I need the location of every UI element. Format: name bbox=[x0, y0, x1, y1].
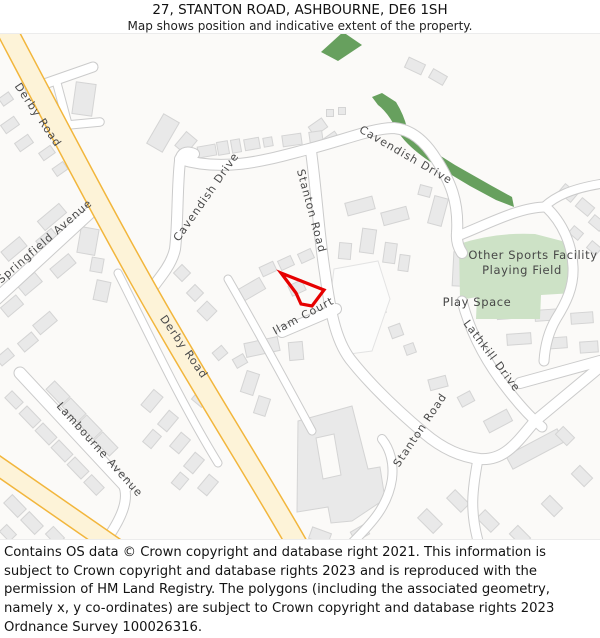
label-sports-facility-line1: Other Sports Facility bbox=[468, 248, 597, 262]
building bbox=[288, 341, 304, 360]
building bbox=[244, 137, 261, 150]
building bbox=[338, 243, 351, 260]
copyright-notice: Contains OS data © Crown copyright and d… bbox=[0, 540, 600, 638]
label-sports-facility-line2: Playing Field bbox=[482, 263, 562, 277]
building bbox=[507, 333, 532, 346]
page-subtitle: Map shows position and indicative extent… bbox=[0, 19, 600, 33]
building bbox=[580, 341, 599, 353]
building bbox=[90, 257, 104, 273]
building bbox=[72, 82, 96, 116]
building bbox=[282, 133, 302, 147]
map-canvas: Derby Road Derby Road Springfield Avenue… bbox=[0, 34, 600, 540]
building bbox=[398, 254, 410, 271]
building bbox=[327, 110, 334, 117]
building bbox=[339, 108, 346, 115]
building bbox=[383, 242, 398, 263]
building bbox=[359, 228, 376, 254]
map-container: Derby Road Derby Road Springfield Avenue… bbox=[0, 33, 600, 540]
building bbox=[216, 141, 229, 156]
page-title: 27, STANTON ROAD, ASHBOURNE, DE6 1SH bbox=[0, 3, 600, 19]
building bbox=[263, 137, 273, 147]
label-play-space: Play Space bbox=[443, 295, 512, 309]
building bbox=[571, 312, 594, 325]
building bbox=[77, 227, 99, 256]
map-title-block: 27, STANTON ROAD, ASHBOURNE, DE6 1SH Map… bbox=[0, 0, 600, 33]
